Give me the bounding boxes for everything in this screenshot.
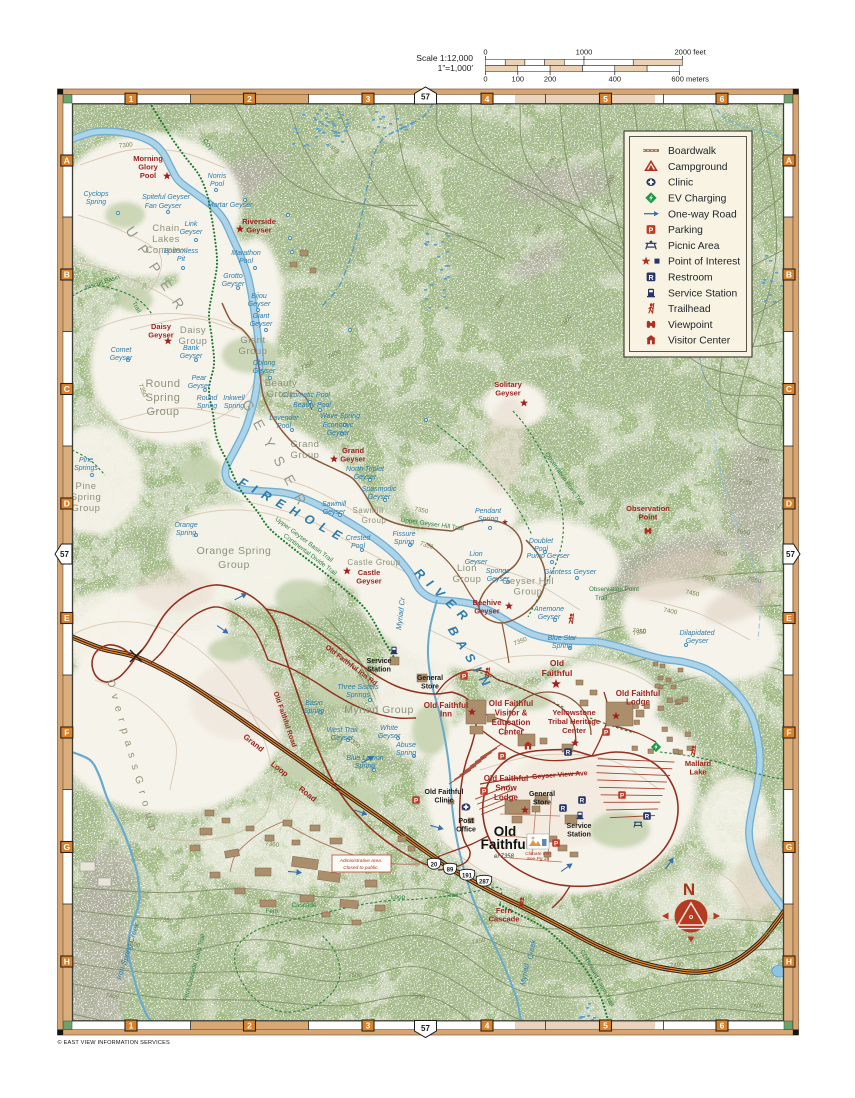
svg-text:Store: Store (533, 800, 551, 807)
svg-text:West Trail: West Trail (327, 727, 358, 734)
svg-text:Point of Interest: Point of Interest (668, 257, 740, 268)
svg-text:Abuse: Abuse (395, 742, 416, 749)
svg-text:R: R (648, 275, 653, 282)
svg-text:200: 200 (544, 75, 557, 84)
svg-text:Fern: Fern (266, 908, 279, 915)
svg-text:7400: 7400 (670, 961, 685, 969)
svg-text:Geyser: Geyser (686, 638, 709, 645)
svg-text:Lavender: Lavender (269, 415, 299, 422)
svg-text:Economic: Economic (323, 422, 354, 429)
svg-text:Spring: Spring (146, 392, 181, 404)
svg-text:Snow: Snow (495, 784, 517, 793)
svg-text:Picnic Area: Picnic Area (668, 241, 720, 252)
svg-text:Group: Group (453, 574, 482, 585)
svg-text:Administrative area.: Administrative area. (339, 858, 382, 864)
svg-text:4: 4 (485, 94, 490, 104)
svg-text:Office: Office (456, 827, 476, 834)
svg-text:P: P (414, 798, 418, 805)
svg-text:Observation Point: Observation Point (589, 586, 639, 593)
svg-text:57: 57 (421, 1024, 430, 1033)
svg-text:Pool: Pool (277, 423, 291, 430)
svg-text:Old Faithful: Old Faithful (425, 789, 464, 796)
svg-text:Pit: Pit (177, 256, 186, 263)
svg-text:100: 100 (512, 75, 525, 84)
svg-text:Service Station: Service Station (668, 288, 738, 299)
svg-text:See Pg 35: See Pg 35 (527, 856, 550, 862)
svg-text:Lakes: Lakes (152, 234, 180, 245)
svg-text:Inn: Inn (440, 710, 452, 719)
svg-text:Anemone: Anemone (533, 606, 564, 613)
svg-text:Service: Service (567, 823, 592, 830)
svg-text:Norris: Norris (208, 173, 227, 180)
svg-text:Fissure: Fissure (393, 531, 416, 538)
svg-text:Lodge: Lodge (626, 698, 651, 707)
svg-text:3: 3 (366, 94, 371, 104)
svg-text:1: 1 (129, 1021, 134, 1031)
svg-text:57: 57 (786, 550, 795, 559)
svg-text:Myriad Group: Myriad Group (344, 704, 414, 716)
svg-text:Geyser: Geyser (495, 389, 521, 398)
svg-text:Spring: Spring (394, 539, 414, 546)
svg-text:191: 191 (462, 873, 473, 879)
svg-text:Clinic: Clinic (668, 178, 693, 189)
svg-text:Geyser: Geyser (354, 474, 377, 481)
svg-text:2: 2 (247, 94, 252, 104)
svg-text:287: 287 (479, 879, 490, 885)
svg-text:Blue Star: Blue Star (548, 635, 577, 642)
svg-text:© EAST VIEW INFORMATION SERVIC: © EAST VIEW INFORMATION SERVICES (58, 1039, 171, 1046)
svg-text:Old: Old (550, 658, 564, 668)
svg-text:C: C (786, 384, 792, 394)
svg-text:Visitor Center: Visitor Center (668, 336, 731, 347)
svg-text:Beauty: Beauty (265, 378, 298, 389)
svg-text:89: 89 (447, 867, 454, 873)
svg-text:P: P (620, 793, 624, 800)
svg-text:Tribal Heritage: Tribal Heritage (548, 717, 600, 726)
svg-text:North Triplet: North Triplet (346, 466, 385, 473)
svg-text:Giant: Giant (240, 335, 265, 346)
svg-text:Visitor &: Visitor & (495, 709, 528, 718)
svg-text:Giant: Giant (253, 313, 271, 320)
svg-text:Springs: Springs (74, 465, 98, 472)
svg-text:Fan Geyser: Fan Geyser (145, 203, 182, 210)
svg-text:B: B (64, 270, 70, 280)
svg-text:Cascade: Cascade (489, 915, 520, 924)
svg-text:Spiteful Geyser: Spiteful Geyser (142, 194, 191, 201)
svg-text:20: 20 (431, 862, 438, 868)
svg-text:P: P (462, 674, 466, 681)
svg-text:D: D (64, 499, 70, 509)
svg-text:0: 0 (483, 48, 487, 57)
svg-text:Geyser: Geyser (356, 577, 382, 586)
svg-text:General: General (529, 791, 555, 798)
svg-text:57: 57 (60, 550, 69, 559)
svg-text:Blue Lemon: Blue Lemon (346, 755, 383, 762)
svg-text:el 7358: el 7358 (494, 854, 514, 860)
svg-text:Geyser: Geyser (323, 509, 346, 516)
svg-text:Geyser: Geyser (250, 321, 273, 328)
svg-text:A: A (786, 156, 792, 166)
svg-text:2: 2 (247, 1021, 252, 1031)
svg-text:P: P (482, 789, 486, 796)
svg-text:Group: Group (362, 516, 387, 525)
svg-text:Spring: Spring (86, 199, 106, 206)
svg-text:Geyser: Geyser (538, 614, 561, 621)
svg-text:Boardwalk: Boardwalk (668, 146, 717, 157)
svg-text:Trail: Trail (446, 892, 458, 899)
svg-text:Geyser: Geyser (180, 353, 203, 360)
svg-text:Viewpoint: Viewpoint (668, 320, 713, 331)
svg-text:Geyser: Geyser (368, 494, 391, 501)
svg-text:Sponge: Sponge (486, 568, 510, 575)
svg-text:Parking: Parking (668, 225, 703, 236)
svg-text:Daisy: Daisy (180, 325, 206, 336)
svg-text:Geyser: Geyser (340, 455, 366, 464)
svg-text:N: N (683, 880, 695, 899)
svg-text:7300: 7300 (119, 141, 134, 149)
svg-text:4: 4 (485, 1021, 490, 1031)
svg-text:P: P (604, 730, 608, 737)
svg-text:Wave Spring: Wave Spring (320, 413, 360, 420)
svg-text:Lion: Lion (469, 551, 482, 558)
svg-text:One-way Road: One-way Road (668, 209, 737, 220)
svg-text:Store: Store (421, 684, 439, 691)
svg-text:C: C (64, 384, 70, 394)
svg-text:Clinic: Clinic (434, 798, 453, 805)
svg-text:R: R (561, 806, 566, 813)
svg-text:1000: 1000 (576, 48, 593, 57)
svg-text:Link: Link (185, 221, 198, 228)
svg-text:57: 57 (421, 93, 430, 102)
svg-text:Castle Group: Castle Group (347, 558, 400, 567)
svg-text:Lodge: Lodge (494, 793, 519, 802)
svg-text:Pendant: Pendant (475, 508, 502, 515)
svg-text:Grotto: Grotto (223, 273, 243, 280)
svg-text:Post: Post (458, 818, 474, 825)
svg-text:Faithful: Faithful (542, 668, 573, 678)
svg-text:D: D (786, 499, 792, 509)
svg-text:Trail: Trail (595, 595, 607, 602)
svg-text:Spring: Spring (304, 708, 324, 715)
svg-text:Spring: Spring (355, 763, 375, 770)
svg-text:1”=1,000′: 1”=1,000′ (438, 63, 474, 73)
svg-text:Spring: Spring (71, 492, 101, 503)
svg-text:Center: Center (498, 728, 523, 737)
svg-text:Round: Round (146, 378, 181, 390)
svg-text:5: 5 (603, 94, 608, 104)
svg-text:Group: Group (291, 450, 320, 461)
svg-text:Pine: Pine (79, 457, 93, 464)
svg-text:Mortar Geyser: Mortar Geyser (208, 202, 253, 209)
svg-text:Three Sisters: Three Sisters (337, 684, 379, 691)
svg-text:3: 3 (366, 1021, 371, 1031)
svg-text:Lion: Lion (457, 563, 477, 574)
svg-text:Faithful: Faithful (481, 837, 530, 852)
svg-text:Old Faithful: Old Faithful (484, 774, 528, 783)
svg-text:Lake: Lake (689, 768, 706, 777)
svg-text:6: 6 (720, 1021, 725, 1031)
svg-text:G: G (63, 842, 70, 852)
svg-text:Geyser: Geyser (253, 368, 276, 375)
svg-text:Geyser Hill: Geyser Hill (502, 576, 554, 587)
svg-text:P: P (500, 754, 504, 761)
svg-text:Pear: Pear (192, 375, 207, 382)
svg-text:Group: Group (514, 587, 543, 598)
svg-text:Spring: Spring (552, 643, 572, 650)
svg-text:Basin: Basin (305, 700, 323, 707)
svg-text:H: H (786, 957, 792, 967)
svg-text:Station: Station (367, 667, 391, 674)
svg-text:Dilapidated: Dilapidated (679, 630, 715, 637)
svg-text:Doublet: Doublet (529, 538, 554, 545)
svg-text:2000 feet: 2000 feet (675, 48, 707, 57)
svg-text:Center: Center (562, 726, 586, 735)
svg-text:Campground: Campground (668, 162, 728, 173)
svg-text:P: P (554, 841, 558, 848)
svg-text:Pine: Pine (75, 481, 96, 492)
svg-text:Spring: Spring (396, 750, 416, 757)
svg-text:Giantess Geyser: Giantess Geyser (544, 569, 597, 576)
svg-text:Loop: Loop (391, 894, 406, 901)
svg-text:Old Faithful: Old Faithful (489, 699, 533, 708)
svg-text:G: G (786, 842, 793, 852)
svg-text:EV Charging: EV Charging (668, 194, 727, 205)
svg-text:Geyser: Geyser (474, 607, 500, 616)
svg-text:6: 6 (720, 94, 725, 104)
svg-text:Service: Service (367, 658, 392, 665)
svg-text:E: E (786, 613, 792, 623)
svg-text:H: H (64, 957, 70, 967)
svg-text:Education: Education (492, 718, 531, 727)
svg-text:0: 0 (483, 75, 487, 84)
svg-text:White: White (380, 725, 398, 732)
svg-text:General: General (417, 675, 443, 682)
svg-text:Grand: Grand (291, 439, 320, 450)
svg-text:Crested: Crested (346, 535, 372, 542)
svg-text:Geyser: Geyser (246, 226, 272, 235)
svg-text:A: A (64, 156, 70, 166)
svg-text:Cyclops: Cyclops (84, 191, 109, 198)
svg-text:Geyser: Geyser (188, 383, 211, 390)
svg-text:Pool: Pool (534, 546, 548, 553)
svg-text:Sawmill: Sawmill (352, 506, 383, 515)
svg-text:Geyser: Geyser (110, 355, 133, 362)
svg-text:Pump Geyser: Pump Geyser (527, 553, 570, 560)
svg-text:E: E (64, 613, 70, 623)
svg-text:Pool: Pool (239, 258, 253, 265)
svg-text:Cascade: Cascade (292, 902, 317, 909)
svg-text:Group: Group (179, 336, 208, 347)
svg-text:Geyser: Geyser (378, 733, 401, 740)
svg-text:B: B (786, 270, 792, 280)
svg-text:F: F (64, 728, 69, 738)
svg-text:Spring: Spring (197, 403, 217, 410)
svg-text:P: P (649, 228, 654, 235)
svg-text:Restroom: Restroom (668, 273, 713, 284)
svg-text:Scale 1:12,000: Scale 1:12,000 (416, 53, 473, 63)
svg-text:Oblong: Oblong (253, 360, 276, 367)
svg-text:Chain: Chain (152, 223, 179, 234)
svg-text:Beauty Pool: Beauty Pool (293, 402, 331, 409)
svg-text:Round: Round (197, 395, 219, 402)
svg-text:Group: Group (267, 389, 296, 400)
svg-text:Group: Group (146, 406, 179, 418)
svg-text:7500: 7500 (348, 972, 363, 980)
svg-text:Geyser: Geyser (180, 229, 203, 236)
svg-text:F: F (786, 728, 791, 738)
svg-text:Closed to public.: Closed to public. (343, 865, 378, 871)
svg-text:Marathon: Marathon (231, 250, 261, 257)
svg-text:Spasmodic: Spasmodic (362, 486, 397, 493)
svg-text:Orange: Orange (174, 522, 197, 529)
svg-text:5: 5 (603, 1021, 608, 1031)
svg-text:R: R (580, 798, 585, 805)
svg-text:Sawmill: Sawmill (322, 501, 347, 508)
svg-text:Group: Group (72, 503, 101, 514)
svg-text:Geyser: Geyser (327, 430, 350, 437)
svg-text:Yellowstone: Yellowstone (552, 708, 595, 717)
svg-text:400: 400 (609, 75, 622, 84)
svg-text:Pool: Pool (140, 171, 156, 180)
svg-text:Pool: Pool (210, 181, 224, 188)
svg-text:Bijou: Bijou (251, 293, 267, 300)
svg-text:Group: Group (239, 346, 268, 357)
svg-text:Springs: Springs (346, 692, 370, 699)
svg-text:R: R (645, 814, 650, 821)
svg-text:Station: Station (567, 832, 591, 839)
svg-text:Group: Group (218, 559, 250, 571)
svg-text:R: R (566, 750, 571, 757)
svg-text:Spring: Spring (478, 516, 498, 523)
svg-text:Geyser: Geyser (248, 301, 271, 308)
svg-text:Point: Point (639, 513, 658, 522)
svg-text:1: 1 (129, 94, 134, 104)
svg-text:Spring: Spring (176, 530, 196, 537)
svg-text:Inkwell: Inkwell (223, 395, 245, 402)
svg-text:Geyser: Geyser (222, 281, 245, 288)
svg-text:Geyser: Geyser (148, 331, 174, 340)
svg-text:Trailhead: Trailhead (668, 304, 711, 315)
svg-text:Orange Spring: Orange Spring (197, 545, 272, 557)
svg-text:600 meters: 600 meters (671, 75, 709, 84)
svg-text:Pool: Pool (351, 543, 365, 550)
svg-text:Comet: Comet (111, 347, 133, 354)
